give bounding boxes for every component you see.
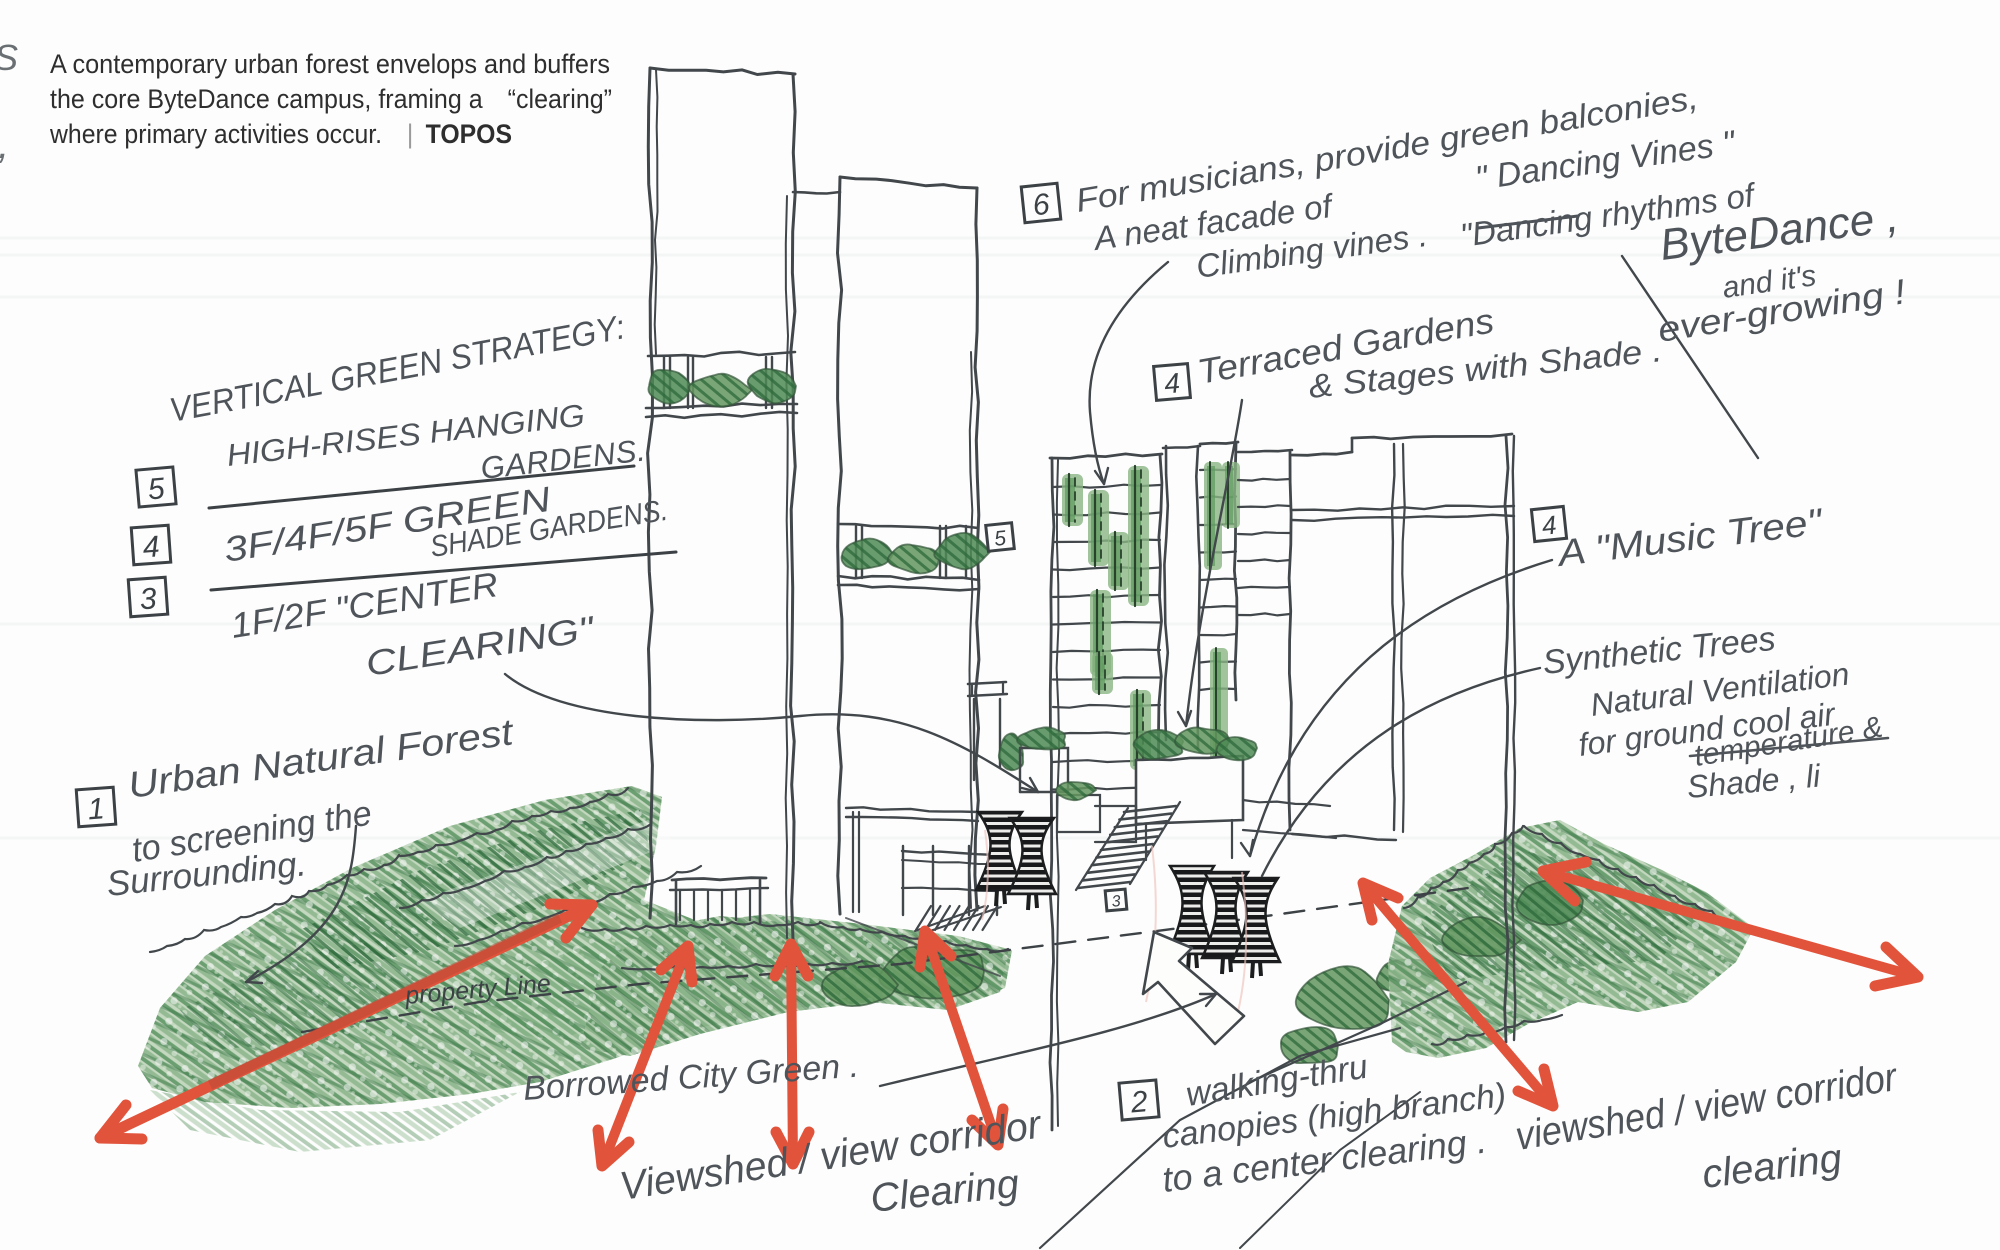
svg-text:4: 4 [142, 530, 161, 564]
svg-text:3: 3 [1111, 893, 1121, 911]
svg-text:S: S [0, 37, 18, 78]
svg-text:the core ByteDance campus, fra: the core ByteDance campus, framing a “cl… [50, 84, 612, 114]
svg-text:2: 2 [1128, 1085, 1149, 1119]
svg-text:3: 3 [139, 582, 158, 616]
svg-text:5: 5 [146, 472, 166, 506]
svg-text:where primary activities occur: where primary activities occur. | TOPOS [49, 119, 512, 149]
svg-text:A contemporary urban forest en: A contemporary urban forest envelops and… [50, 49, 610, 79]
svg-text:1: 1 [87, 792, 106, 826]
svg-text:4: 4 [1163, 367, 1181, 399]
svg-text:,: , [0, 123, 9, 167]
